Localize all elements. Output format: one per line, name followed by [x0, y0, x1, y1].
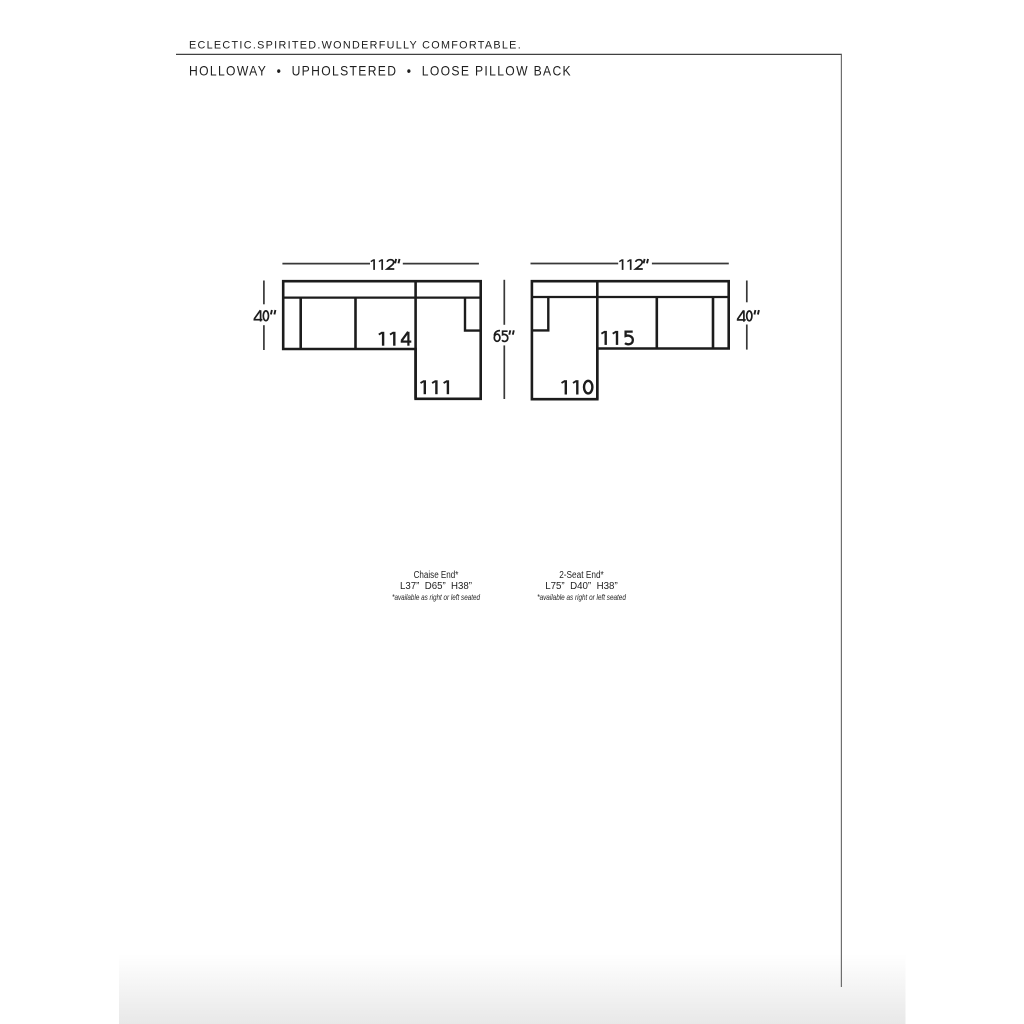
svg-text:L75” D40” H38”: L75” D40” H38” [545, 581, 618, 592]
svg-text:2-Seat End*: 2-Seat End* [559, 570, 604, 581]
svg-text:L37” D65” H38”: L37” D65” H38” [400, 581, 472, 592]
svg-text:HOLLOWAY • UPHOLSTERED • L: HOLLOWAY • UPHOLSTERED • LOOSE PILLOW BA… [189, 64, 572, 79]
svg-text:ECLECTIC.SPIRITED.WONDERFULLY: ECLECTIC.SPIRITED.WONDERFULLY COMFORTABL… [189, 40, 522, 52]
svg-text:Chaise End*: Chaise End* [414, 570, 459, 581]
svg-text:*available as right or left se: *available as right or left seated [392, 592, 480, 602]
svg-text:*available as right or left se: *available as right or left seated [537, 592, 626, 602]
